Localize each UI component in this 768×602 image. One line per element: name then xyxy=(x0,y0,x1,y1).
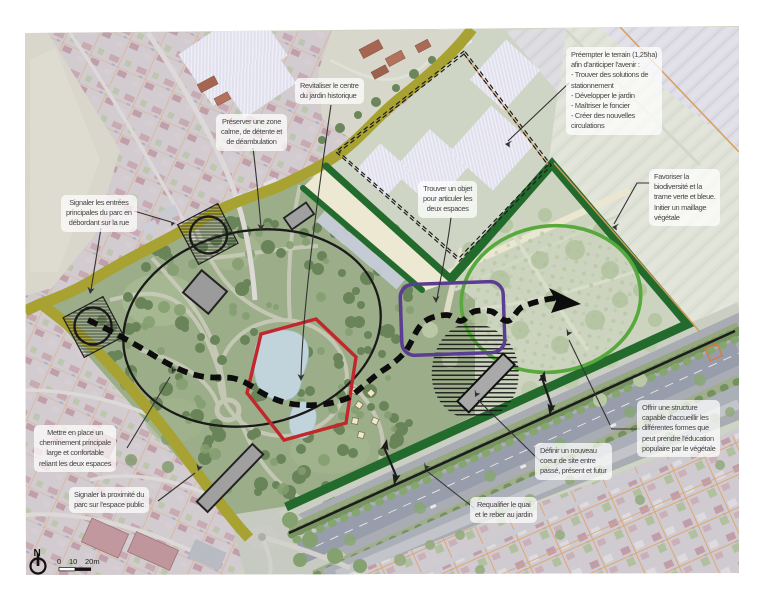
svg-text:0: 0 xyxy=(57,557,61,566)
svg-text:N: N xyxy=(34,548,41,559)
svg-text:10: 10 xyxy=(69,557,77,566)
svg-text:20m: 20m xyxy=(85,557,100,566)
